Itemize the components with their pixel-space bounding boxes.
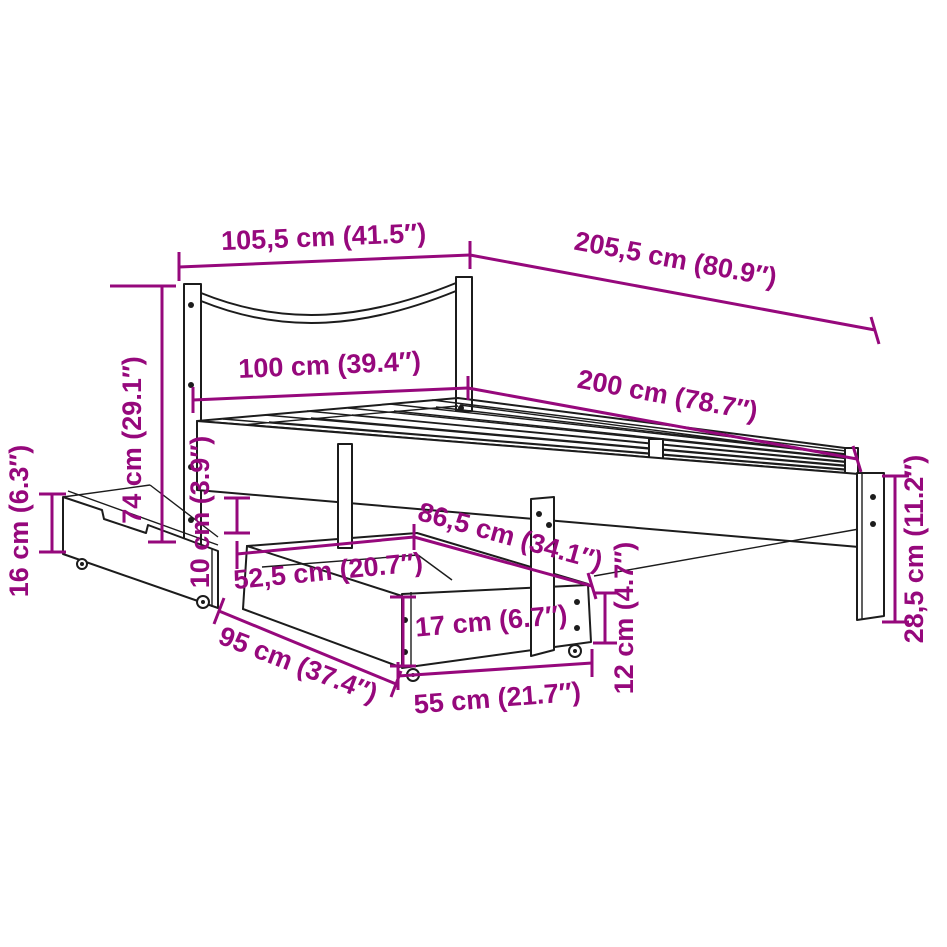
bed-frame-diagram-svg: 105,5 cm (41.5″) 205,5 cm (80.9″) 100 cm… bbox=[0, 0, 947, 947]
headboard-top-curve bbox=[201, 283, 456, 315]
dimension-foot-leg-height: 28,5 cm (11.2″) bbox=[882, 455, 929, 644]
screw-dot bbox=[870, 521, 876, 527]
dim-label-drawer-length: 95 cm (37.4″) bbox=[215, 621, 382, 709]
dim-label-drawer-end-height: 12 cm (4.7″) bbox=[609, 542, 639, 695]
screw-dot bbox=[574, 599, 580, 605]
foot-leg bbox=[857, 473, 884, 620]
dimension-overall-length: 205,5 cm (80.9″) bbox=[470, 226, 879, 344]
caster-axle bbox=[201, 600, 205, 604]
screw-dot bbox=[546, 522, 552, 528]
headboard-bottom-curve bbox=[201, 291, 456, 323]
dimension-bed-width: 100 cm (39.4″) bbox=[193, 346, 468, 413]
dimension-headboard-height: 74 cm (29.1″) bbox=[110, 286, 176, 542]
screw-dot bbox=[870, 494, 876, 500]
screw-dot bbox=[536, 511, 542, 517]
screw-dot bbox=[574, 625, 580, 631]
dim-label-foot-leg-height: 28,5 cm (11.2″) bbox=[899, 455, 929, 644]
caster-axle bbox=[573, 649, 577, 653]
dim-label-side-drawer-height: 16 cm (6.3″) bbox=[4, 445, 34, 598]
headboard-right-post bbox=[456, 277, 472, 411]
dim-label-bed-width: 100 cm (39.4″) bbox=[238, 346, 422, 384]
dimension-diagram: 105,5 cm (41.5″) 205,5 cm (80.9″) 100 cm… bbox=[0, 0, 947, 947]
screw-dot bbox=[188, 302, 194, 308]
dim-label-drawer-front-width: 55 cm (21.7″) bbox=[413, 677, 582, 720]
dim-label-overall-length: 205,5 cm (80.9″) bbox=[572, 226, 779, 293]
dimension-drawer-length: 95 cm (37.4″) bbox=[214, 598, 401, 709]
dim-label-under-bed-clearance: 10 cm (3.9″) bbox=[185, 436, 215, 589]
dimension-headboard-top-width: 105,5 cm (41.5″) bbox=[179, 218, 470, 281]
dim-label-drawer-inner-width: 52,5 cm (20.7″) bbox=[232, 547, 424, 595]
dim-label-headboard-top-width: 105,5 cm (41.5″) bbox=[221, 218, 427, 256]
dimension-side-drawer-height: 16 cm (6.3″) bbox=[4, 445, 66, 598]
dim-label-headboard-height: 74 cm (29.1″) bbox=[117, 356, 147, 524]
caster-axle bbox=[80, 562, 84, 566]
mid-leg bbox=[338, 444, 352, 548]
